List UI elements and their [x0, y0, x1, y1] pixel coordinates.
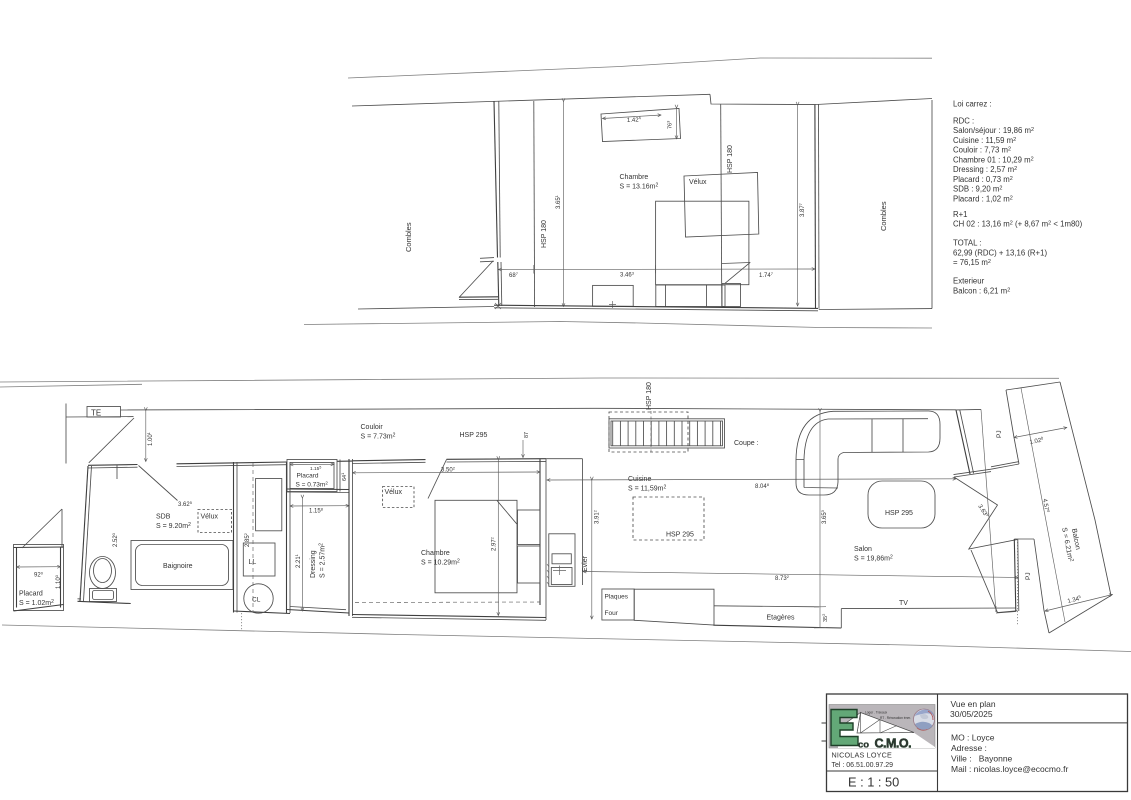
svg-text:S = 9.20m2: S = 9.20m2 [156, 522, 191, 530]
svg-text:87: 87 [524, 432, 530, 438]
svg-text:30/05/2025: 30/05/2025 [950, 709, 993, 719]
svg-text:HSP 295: HSP 295 [666, 532, 694, 539]
svg-text:Vue en plan: Vue en plan [951, 699, 996, 709]
svg-text:Salon/séjour : 19,86 m2: Salon/séjour : 19,86 m2 [953, 126, 1034, 135]
svg-text:Evier: Evier [582, 555, 589, 572]
svg-text:Ville : Bayonne: Ville : Bayonne [951, 753, 1013, 763]
svg-text:SDB: SDB [156, 514, 171, 521]
svg-text:Chambre 01 : 10,29 m2: Chambre 01 : 10,29 m2 [953, 156, 1034, 165]
svg-text:PJ: PJ [1025, 572, 1032, 580]
svg-text:Vélux: Vélux [689, 179, 707, 186]
svg-text:TV: TV [899, 600, 908, 607]
svg-text:Loi carrez :: Loi carrez : [953, 100, 992, 109]
svg-text:Couloir: Couloir [361, 424, 384, 431]
svg-text:Etagères: Etagères [767, 615, 796, 622]
svg-text:Exterieur: Exterieur [953, 277, 985, 286]
svg-text:Vélux: Vélux [201, 514, 219, 521]
svg-text:NICOLAS LOYCE: NICOLAS LOYCE [832, 751, 893, 760]
svg-text:Cuisine: Cuisine [628, 476, 651, 483]
svg-text:Baignoire: Baignoire [163, 563, 193, 570]
svg-text:Coupe :: Coupe : [734, 440, 759, 447]
svg-text:Balcon : 6,21 m2: Balcon : 6,21 m2 [953, 287, 1010, 296]
svg-text:C.M.O.: C.M.O. [875, 737, 912, 751]
svg-text:Four: Four [605, 610, 619, 617]
svg-text:Cuisine : 11,59 m2: Cuisine : 11,59 m2 [953, 136, 1016, 145]
svg-text:MO : Loyce: MO : Loyce [951, 733, 995, 743]
svg-text:Chambre: Chambre [620, 174, 649, 181]
svg-text:Mail : nicolas.loyce@ecocmo.fr: Mail : nicolas.loyce@ecocmo.fr [951, 764, 1068, 774]
svg-text:R+1: R+1 [953, 210, 968, 219]
svg-text:CH 02 : 13,16 m2 (+ 8,67 m2 <: CH 02 : 13,16 m2 (+ 8,67 m2 < 1m80) [953, 220, 1083, 229]
svg-text:Chambre: Chambre [421, 550, 450, 557]
svg-text:S = 11,59m2: S = 11,59m2 [628, 484, 666, 492]
svg-text:S = 0.73m2: S = 0.73m2 [296, 481, 329, 489]
svg-text:TE: TE [91, 409, 101, 418]
svg-text:62,99 (RDC) + 13,16 (R+1): 62,99 (RDC) + 13,16 (R+1) [953, 249, 1047, 258]
svg-text:Placard : 0,73 m2: Placard : 0,73 m2 [953, 175, 1013, 184]
svg-text:HSP 180: HSP 180 [727, 145, 734, 173]
svg-text:RT . Rénovation éner.: RT . Rénovation éner. [880, 716, 911, 720]
svg-text:S = 7.73m2: S = 7.73m2 [361, 432, 396, 440]
svg-text:Plaques: Plaques [605, 594, 629, 601]
svg-text:Salon: Salon [854, 546, 872, 553]
svg-text:Couloir : 7,73 m2: Couloir : 7,73 m2 [953, 146, 1011, 155]
svg-text:LL: LL [249, 559, 257, 566]
svg-text:Placard: Placard [297, 473, 319, 480]
svg-text:HSP 295: HSP 295 [460, 432, 488, 439]
svg-text:Dressing: Dressing [310, 550, 317, 578]
svg-text:PJ: PJ [996, 430, 1003, 438]
svg-text:S = 19,86m2: S = 19,86m2 [854, 554, 893, 562]
svg-text:Dressing : 2,57 m2: Dressing : 2,57 m2 [953, 165, 1017, 174]
svg-text:S = 1.02m2: S = 1.02m2 [19, 599, 54, 607]
svg-text:Placard : 1,02 m2: Placard : 1,02 m2 [953, 195, 1013, 204]
svg-text:SDB : 9,20 m2: SDB : 9,20 m2 [953, 185, 1002, 194]
svg-text:= 76,15 m2: = 76,15 m2 [953, 258, 991, 267]
svg-text:Adresse :: Adresse : [951, 743, 987, 753]
svg-text:S = 2.57m2: S = 2.57m2 [319, 543, 327, 578]
svg-text:HSP 180: HSP 180 [541, 220, 548, 248]
svg-text:Tel : 06.51.00.97.29: Tel : 06.51.00.97.29 [832, 762, 894, 769]
svg-text:HSP 180: HSP 180 [646, 382, 653, 410]
svg-text:Combles: Combles [879, 201, 888, 231]
svg-text:E : 1 : 50: E : 1 : 50 [848, 775, 899, 790]
svg-text:HSP 295: HSP 295 [885, 510, 913, 517]
svg-text:Combles: Combles [404, 222, 413, 252]
svg-text:RDC :: RDC : [953, 117, 974, 126]
svg-text:TOTAL :: TOTAL : [953, 239, 981, 248]
svg-text:Placard: Placard [19, 591, 43, 598]
svg-text:S = 10.29m2: S = 10.29m2 [421, 558, 460, 566]
svg-text:co: co [858, 740, 869, 751]
svg-text:S = 13.16m2: S = 13.16m2 [620, 183, 659, 191]
svg-text:Loger . Travaux: Loger . Travaux [865, 711, 888, 715]
svg-text:Vélux: Vélux [385, 489, 403, 496]
